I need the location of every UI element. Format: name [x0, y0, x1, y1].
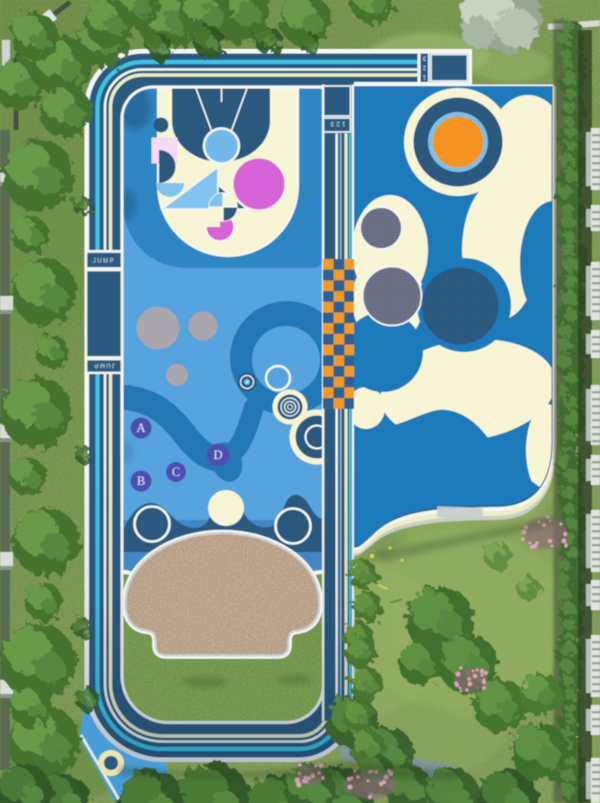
- svg-text:1: 1: [422, 74, 426, 81]
- svg-text:3: 3: [422, 55, 426, 62]
- svg-text:2: 2: [422, 64, 426, 71]
- svg-text:C: C: [172, 465, 180, 479]
- svg-text:D: D: [213, 448, 222, 462]
- svg-text:B: B: [137, 474, 145, 488]
- svg-text:A: A: [136, 421, 145, 435]
